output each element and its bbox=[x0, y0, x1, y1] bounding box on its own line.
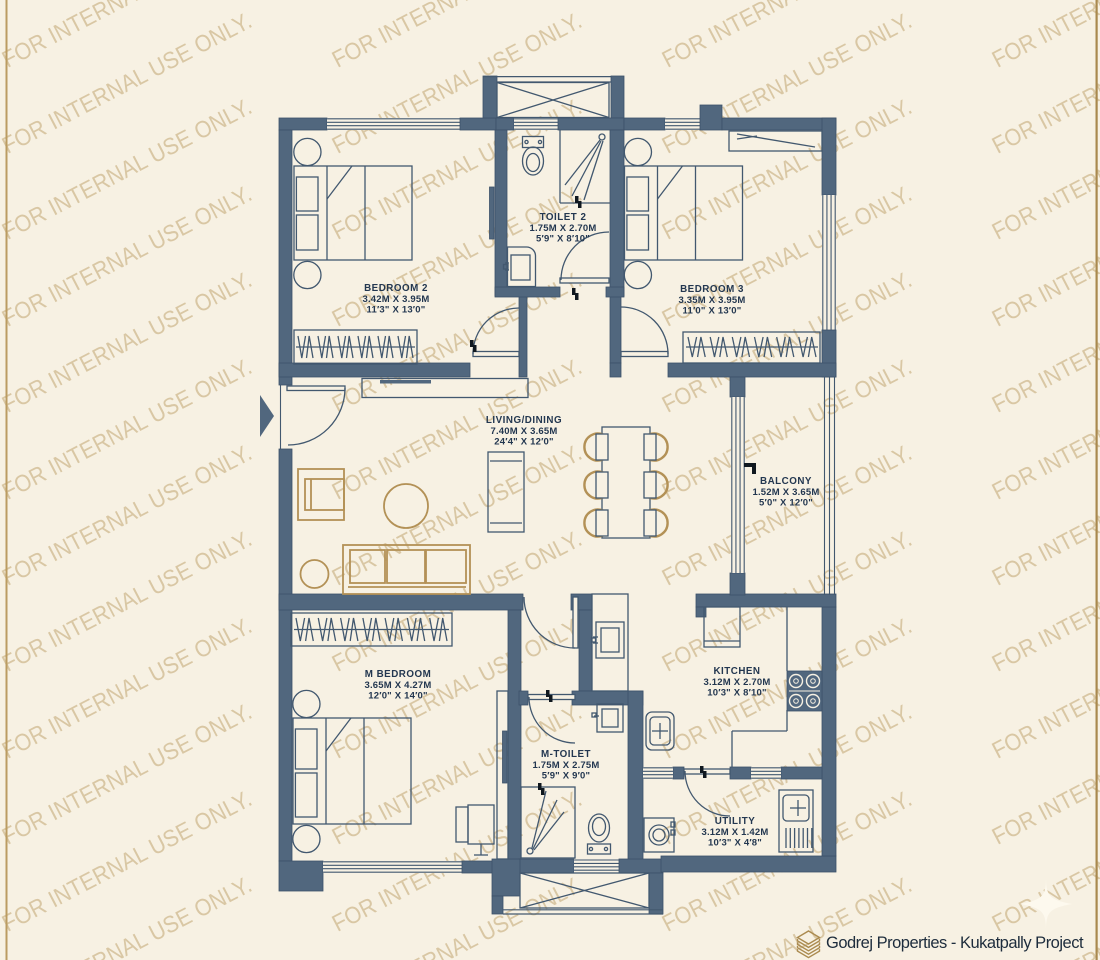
svg-text:Godrej Properties - Kukatpally: Godrej Properties - Kukatpally Project bbox=[826, 934, 1084, 952]
svg-text:3.12M X 2.70M: 3.12M X 2.70M bbox=[703, 677, 770, 688]
svg-text:1.75M X 2.75M: 1.75M X 2.75M bbox=[532, 760, 599, 771]
svg-text:LIVING/DINING: LIVING/DINING bbox=[486, 415, 562, 426]
svg-text:11′0" X 13′0": 11′0" X 13′0" bbox=[683, 306, 742, 317]
svg-text:BEDROOM 2: BEDROOM 2 bbox=[364, 283, 428, 294]
svg-text:3.42M X 3.95M: 3.42M X 3.95M bbox=[362, 294, 429, 305]
svg-text:5′9" X 8′10": 5′9" X 8′10" bbox=[536, 234, 590, 245]
svg-text:7.40M X 3.65M: 7.40M X 3.65M bbox=[490, 426, 557, 437]
svg-text:10′3" X 4′8": 10′3" X 4′8" bbox=[708, 838, 762, 849]
svg-text:12′0" X 14′0": 12′0" X 14′0" bbox=[368, 691, 427, 702]
svg-text:3.12M X 1.42M: 3.12M X 1.42M bbox=[701, 827, 768, 838]
svg-text:BEDROOM 3: BEDROOM 3 bbox=[680, 284, 744, 295]
svg-text:M-TOILET: M-TOILET bbox=[541, 749, 591, 760]
svg-text:5′0" X 12′0": 5′0" X 12′0" bbox=[759, 498, 813, 509]
svg-text:KITCHEN: KITCHEN bbox=[713, 666, 760, 677]
svg-text:11′3" X 13′0": 11′3" X 13′0" bbox=[367, 305, 426, 316]
svg-text:24′4" X 12′0": 24′4" X 12′0" bbox=[494, 437, 553, 448]
svg-text:1.52M X 3.65M: 1.52M X 3.65M bbox=[752, 487, 819, 498]
svg-text:TOILET 2: TOILET 2 bbox=[540, 212, 587, 223]
svg-text:M BEDROOM: M BEDROOM bbox=[365, 669, 432, 680]
svg-text:3.65M X 4.27M: 3.65M X 4.27M bbox=[364, 680, 431, 691]
svg-text:1.75M X 2.70M: 1.75M X 2.70M bbox=[529, 223, 596, 234]
svg-text:UTILITY: UTILITY bbox=[715, 816, 756, 827]
svg-text:BALCONY: BALCONY bbox=[760, 476, 812, 487]
svg-text:3.35M X 3.95M: 3.35M X 3.95M bbox=[678, 295, 745, 306]
svg-text:5′9" X 9′0": 5′9" X 9′0" bbox=[542, 771, 591, 782]
svg-text:10′3" X 8′10": 10′3" X 8′10" bbox=[707, 688, 766, 699]
